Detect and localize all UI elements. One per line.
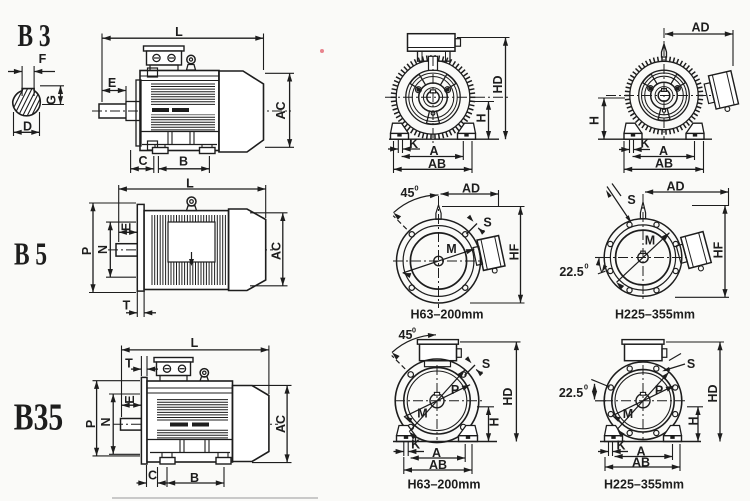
svg-text:HF: HF bbox=[508, 243, 522, 260]
svg-text:P: P bbox=[655, 384, 663, 398]
svg-text:G: G bbox=[45, 95, 59, 105]
svg-text:K: K bbox=[411, 438, 420, 452]
svg-text:HD: HD bbox=[501, 388, 515, 406]
svg-text:B: B bbox=[179, 154, 188, 168]
svg-text:S: S bbox=[482, 357, 490, 371]
svg-text:E: E bbox=[108, 76, 116, 90]
svg-text:S: S bbox=[483, 216, 491, 230]
svg-text:P: P bbox=[84, 420, 98, 428]
svg-text:AD: AD bbox=[666, 179, 684, 193]
svg-text:0: 0 bbox=[414, 184, 418, 193]
svg-text:45: 45 bbox=[399, 328, 413, 342]
svg-text:B 3: B 3 bbox=[17, 19, 50, 54]
svg-text:C: C bbox=[148, 469, 157, 483]
svg-text:AB: AB bbox=[655, 157, 673, 171]
svg-text:S: S bbox=[627, 193, 635, 207]
svg-text:AC: AC bbox=[269, 242, 283, 260]
svg-text:HD: HD bbox=[491, 75, 505, 93]
svg-text:K: K bbox=[640, 137, 649, 151]
svg-text:H: H bbox=[488, 417, 502, 426]
svg-text:P: P bbox=[80, 247, 94, 255]
svg-text:22.5: 22.5 bbox=[559, 386, 583, 400]
svg-text:M: M bbox=[417, 406, 427, 420]
svg-text:D: D bbox=[23, 120, 32, 134]
svg-text:F: F bbox=[39, 52, 47, 66]
svg-text:HF: HF bbox=[712, 241, 726, 258]
svg-text:K: K bbox=[616, 438, 625, 452]
svg-text:L: L bbox=[175, 25, 183, 39]
svg-text:M: M bbox=[623, 407, 633, 421]
svg-text:45: 45 bbox=[401, 186, 415, 200]
svg-text:T: T bbox=[123, 299, 131, 313]
svg-text:0: 0 bbox=[584, 262, 588, 271]
svg-text:0: 0 bbox=[584, 383, 588, 392]
svg-text:AC: AC bbox=[274, 415, 288, 433]
svg-text:H63–200mm: H63–200mm bbox=[408, 478, 481, 492]
svg-text:AD: AD bbox=[691, 21, 709, 35]
svg-text:B: B bbox=[190, 471, 199, 485]
svg-text:E: E bbox=[123, 395, 137, 403]
svg-text:H: H bbox=[686, 416, 700, 425]
svg-text:S: S bbox=[687, 357, 695, 371]
svg-text:L: L bbox=[186, 176, 194, 190]
svg-text:B 5: B 5 bbox=[14, 237, 47, 272]
svg-text:M: M bbox=[645, 234, 655, 248]
svg-text:T: T bbox=[125, 356, 133, 370]
svg-text:C: C bbox=[138, 154, 147, 168]
svg-text:H225–355mm: H225–355mm bbox=[604, 478, 684, 492]
svg-text:AB: AB bbox=[428, 157, 446, 171]
svg-text:AC: AC bbox=[274, 101, 288, 119]
svg-text:22.5: 22.5 bbox=[559, 265, 583, 279]
svg-text:H: H bbox=[587, 116, 601, 125]
svg-text:H63–200mm: H63–200mm bbox=[411, 307, 484, 321]
svg-text:E: E bbox=[119, 223, 133, 231]
svg-text:0: 0 bbox=[412, 326, 416, 335]
svg-text:L: L bbox=[191, 336, 199, 350]
svg-text:AB: AB bbox=[632, 455, 650, 469]
svg-text:K: K bbox=[409, 137, 418, 151]
svg-text:H: H bbox=[475, 113, 489, 122]
svg-text:B35: B35 bbox=[14, 397, 63, 438]
svg-text:AD: AD bbox=[462, 181, 480, 195]
svg-text:AB: AB bbox=[429, 458, 447, 472]
svg-text:N: N bbox=[99, 417, 113, 426]
svg-text:HD: HD bbox=[706, 384, 720, 402]
svg-text:M: M bbox=[446, 242, 456, 256]
svg-text:N: N bbox=[96, 245, 110, 254]
svg-text:H225–355mm: H225–355mm bbox=[615, 308, 695, 322]
